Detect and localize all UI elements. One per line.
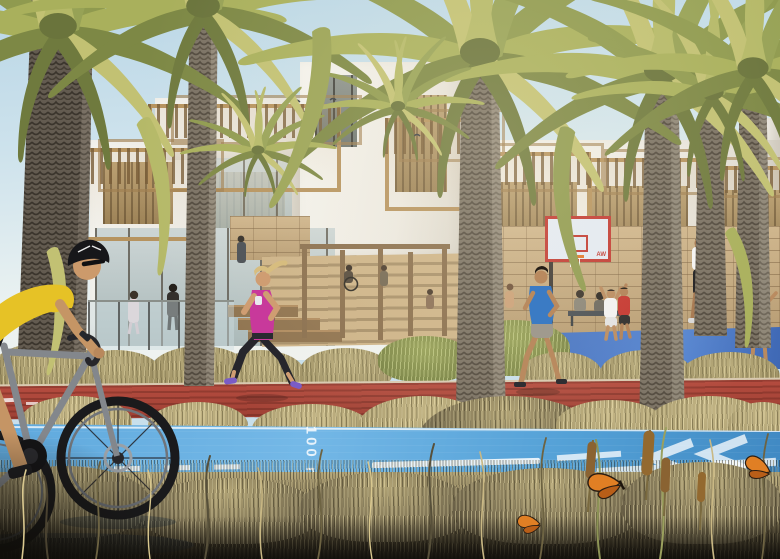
- architectural-rendering: AW: [0, 0, 780, 559]
- corner-shadow: [0, 430, 190, 559]
